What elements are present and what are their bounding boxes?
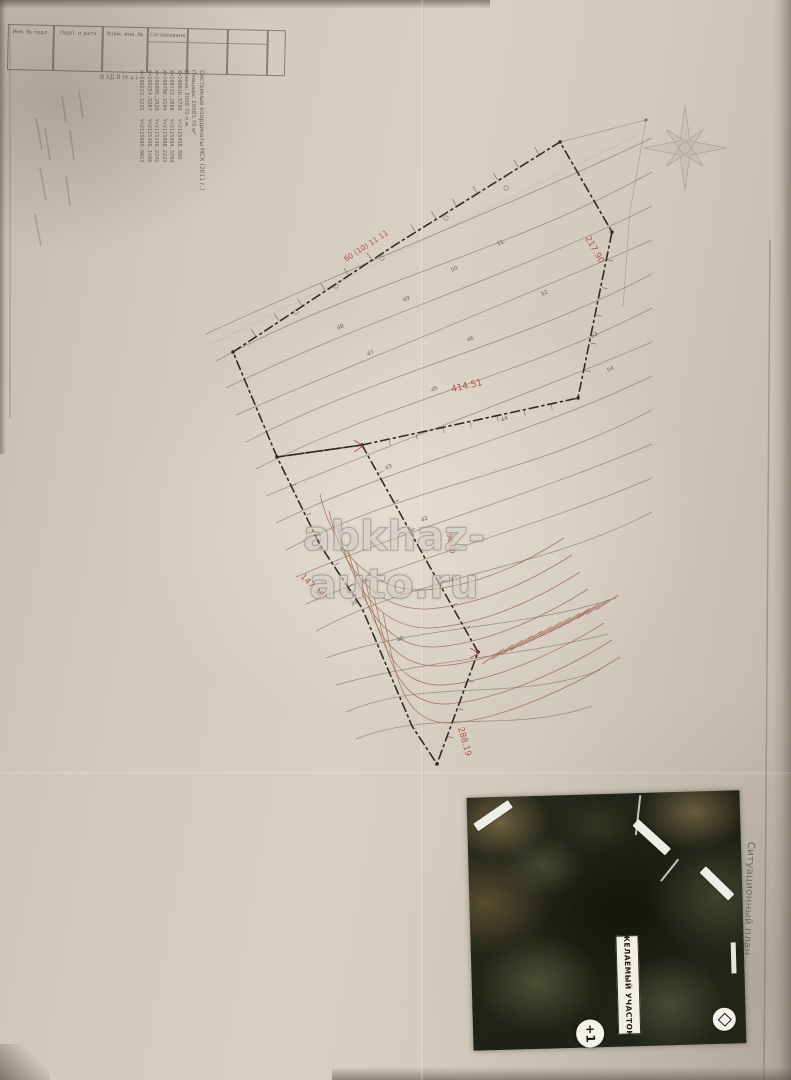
boundary-tick: [389, 440, 390, 445]
boundary-tick: [379, 471, 383, 473]
boundary-tick: [452, 199, 456, 206]
elevation-label: 40: [396, 635, 405, 644]
contour-line: [356, 706, 592, 739]
boundary-tick: [551, 405, 552, 410]
marker-circle: +1: [576, 1019, 605, 1048]
contour-line: [374, 596, 612, 704]
parcel-boundary-upper: [233, 142, 612, 457]
photographed-survey-plan: Инв. № подл. Подп. и дата Взам. инв. № С…: [0, 0, 791, 1080]
survey-mark-bar: [473, 800, 513, 831]
vegetation-icon: [444, 216, 448, 220]
boundary-tick: [497, 417, 498, 422]
hachure-stroke: [568, 609, 590, 624]
contour-line: [216, 172, 652, 361]
dimension-label: 414.51: [450, 378, 483, 395]
contour-line: [236, 240, 652, 415]
marker-plus-one: +1: [583, 1024, 598, 1043]
hachure-stroke: [558, 613, 580, 628]
margin-mark: [45, 128, 50, 160]
margin-mark: [36, 118, 42, 150]
hachure-stroke: [511, 636, 533, 651]
compass-rose-icon: [643, 106, 727, 190]
margin-mark: [70, 130, 74, 160]
margin-marks: [35, 92, 83, 246]
margin-mark: [35, 214, 41, 246]
boundary-tick: [416, 434, 417, 439]
margin-mark: [66, 176, 70, 206]
vegetation-icon: [504, 186, 508, 190]
boundary-tick: [443, 428, 444, 433]
dimension-label: 288.19: [455, 726, 473, 757]
parcel-label-box: ЖЕЛАЕМЫЙ УЧАСТОК: [615, 935, 641, 1035]
margin-mark: [79, 92, 83, 118]
contour-line: [266, 342, 652, 496]
hachure-stroke: [492, 645, 514, 660]
boundary-tick: [251, 329, 255, 336]
contour-line: [383, 613, 620, 723]
contour-lines: [206, 138, 652, 739]
contour-line: [226, 206, 652, 388]
boundary-tick: [524, 411, 525, 416]
margin-mark: [40, 168, 46, 200]
contour-line: [206, 138, 652, 334]
margin-mark: [62, 96, 66, 122]
hachure-stroke: [530, 627, 552, 642]
white-mark: [731, 942, 737, 973]
boundary-tick: [585, 371, 591, 372]
boundary-tick: [596, 315, 602, 316]
elevation-label: 52: [540, 289, 549, 297]
marker-circle: [712, 1007, 736, 1031]
hachure-stroke: [520, 631, 542, 646]
boundary-tick: [473, 186, 477, 193]
survey-mark-bar: [632, 819, 671, 855]
boundary-tick: [395, 500, 399, 502]
elevation-label: 48: [336, 323, 345, 332]
boundary-tick: [448, 736, 453, 738]
boundary-tick: [431, 212, 435, 219]
elevation-label: 50: [450, 265, 459, 274]
contour-line: [246, 274, 652, 442]
contour-line: [346, 670, 600, 712]
boundary-tick: [458, 708, 463, 710]
elevation-label: 44: [500, 415, 509, 424]
diamond-icon: [717, 1012, 731, 1026]
elevation-label: 49: [402, 295, 411, 304]
boundary-tick: [274, 314, 278, 321]
boundary-tick: [514, 160, 518, 167]
dimension-label: 60 (10) 11 11: [342, 228, 390, 264]
boundary-tick: [411, 224, 415, 231]
elevation-label: 46: [466, 335, 475, 344]
boundary-tick: [535, 147, 539, 154]
hachure-stroke: [539, 622, 561, 637]
white-path-line: [660, 859, 679, 882]
watermark: abkhaz-auto.ru: [248, 512, 540, 608]
boundary-tick: [321, 283, 325, 290]
survey-mark-bar: [700, 866, 735, 900]
boundary-tick: [367, 253, 371, 260]
parcel-label: ЖЕЛАЕМЫЙ УЧАСТОК: [622, 933, 634, 1038]
hachure-stroke: [587, 600, 609, 615]
satellite-inset: ЖЕЛАЕМЫЙ УЧАСТОК +1: [467, 790, 747, 1051]
dimension-labels: 60 (10) 11 11 217.90 414.51 147.38 288.1…: [298, 228, 606, 757]
elevation-label: 45: [430, 385, 439, 394]
boundary-tick: [607, 260, 613, 261]
elevation-label: 54: [606, 365, 615, 374]
boundary-tick: [602, 288, 608, 289]
boundary-tick: [493, 173, 497, 180]
elevation-label: 43: [384, 463, 393, 472]
hachure-stroke: [596, 595, 618, 610]
boundary-tick: [590, 343, 596, 344]
hachure-stroke: [549, 618, 571, 633]
dimension-label: 217.90: [582, 235, 606, 266]
parcel-boundary: [233, 142, 612, 764]
boundary-tick: [470, 422, 471, 427]
